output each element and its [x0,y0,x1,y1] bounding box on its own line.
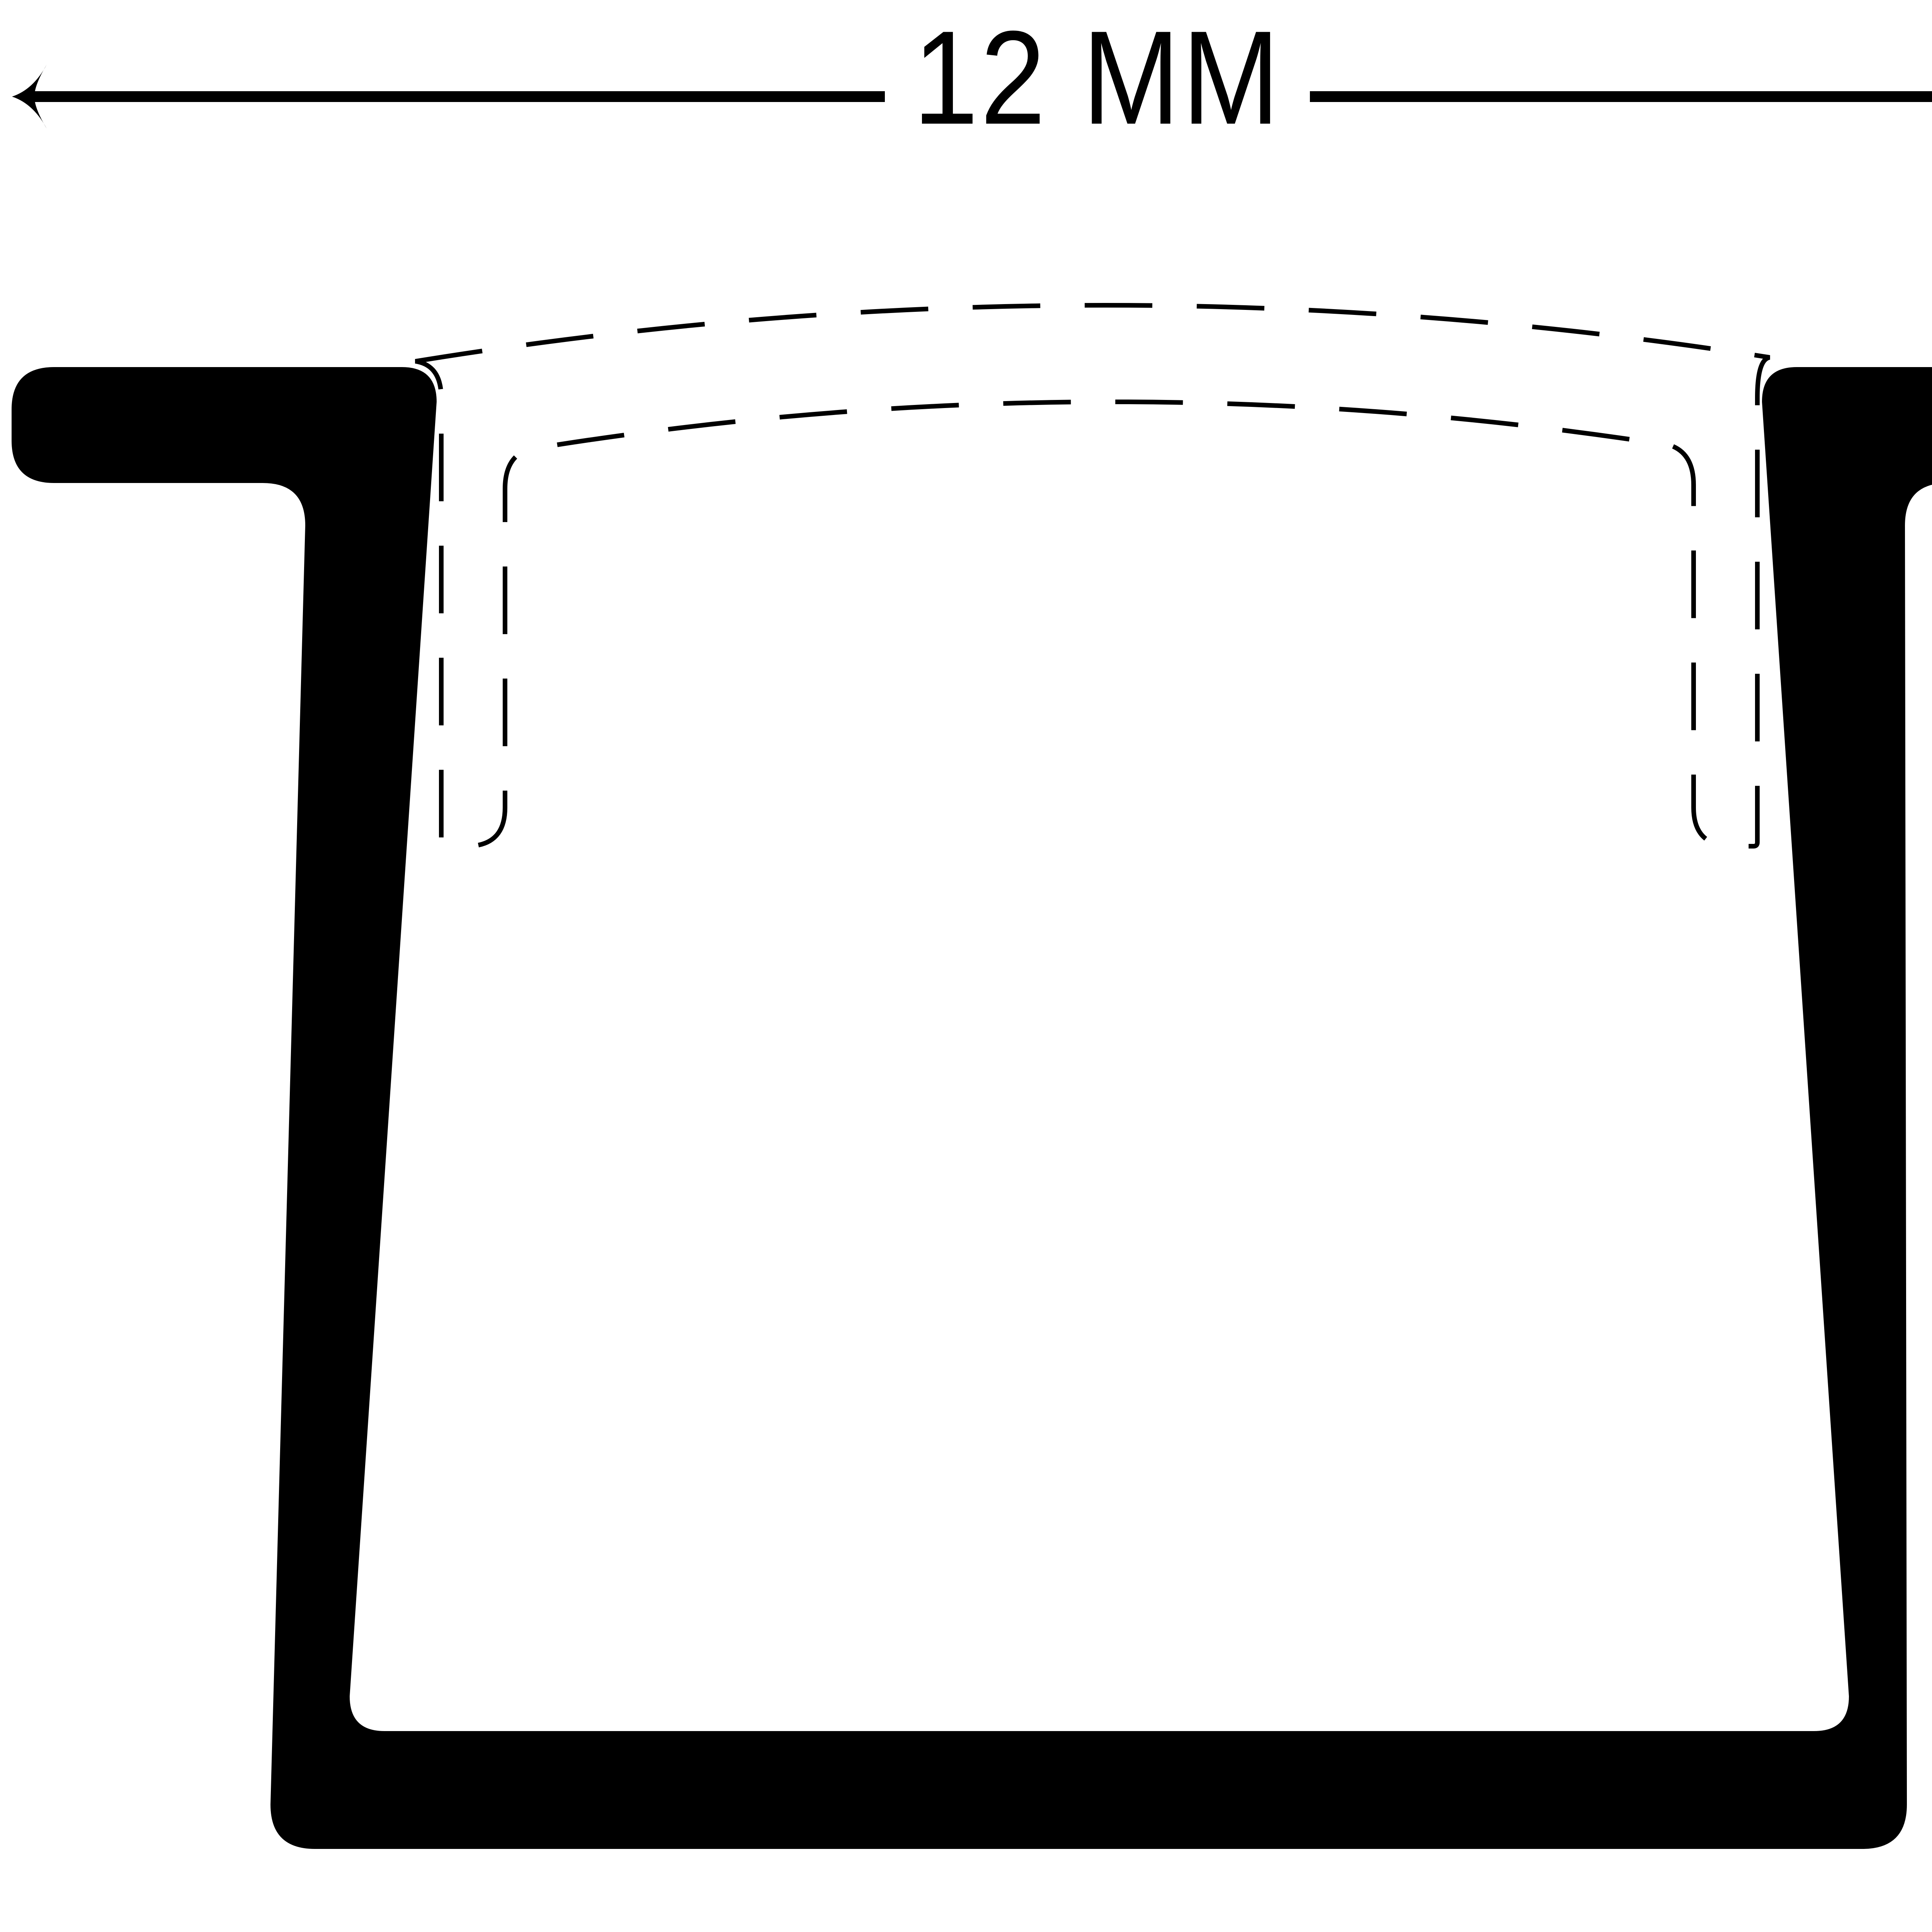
led-profile-cross-section-diagram: 12 MM 8 MM 8 MM [0,0,1932,1932]
overall-width-label: 12 MM [913,3,1282,152]
diffuser-cover-dashed-outline [415,305,1770,846]
dimension-top-overall-width: 12 MM [12,3,1932,152]
channel-profile-cross-section [12,367,1932,1849]
